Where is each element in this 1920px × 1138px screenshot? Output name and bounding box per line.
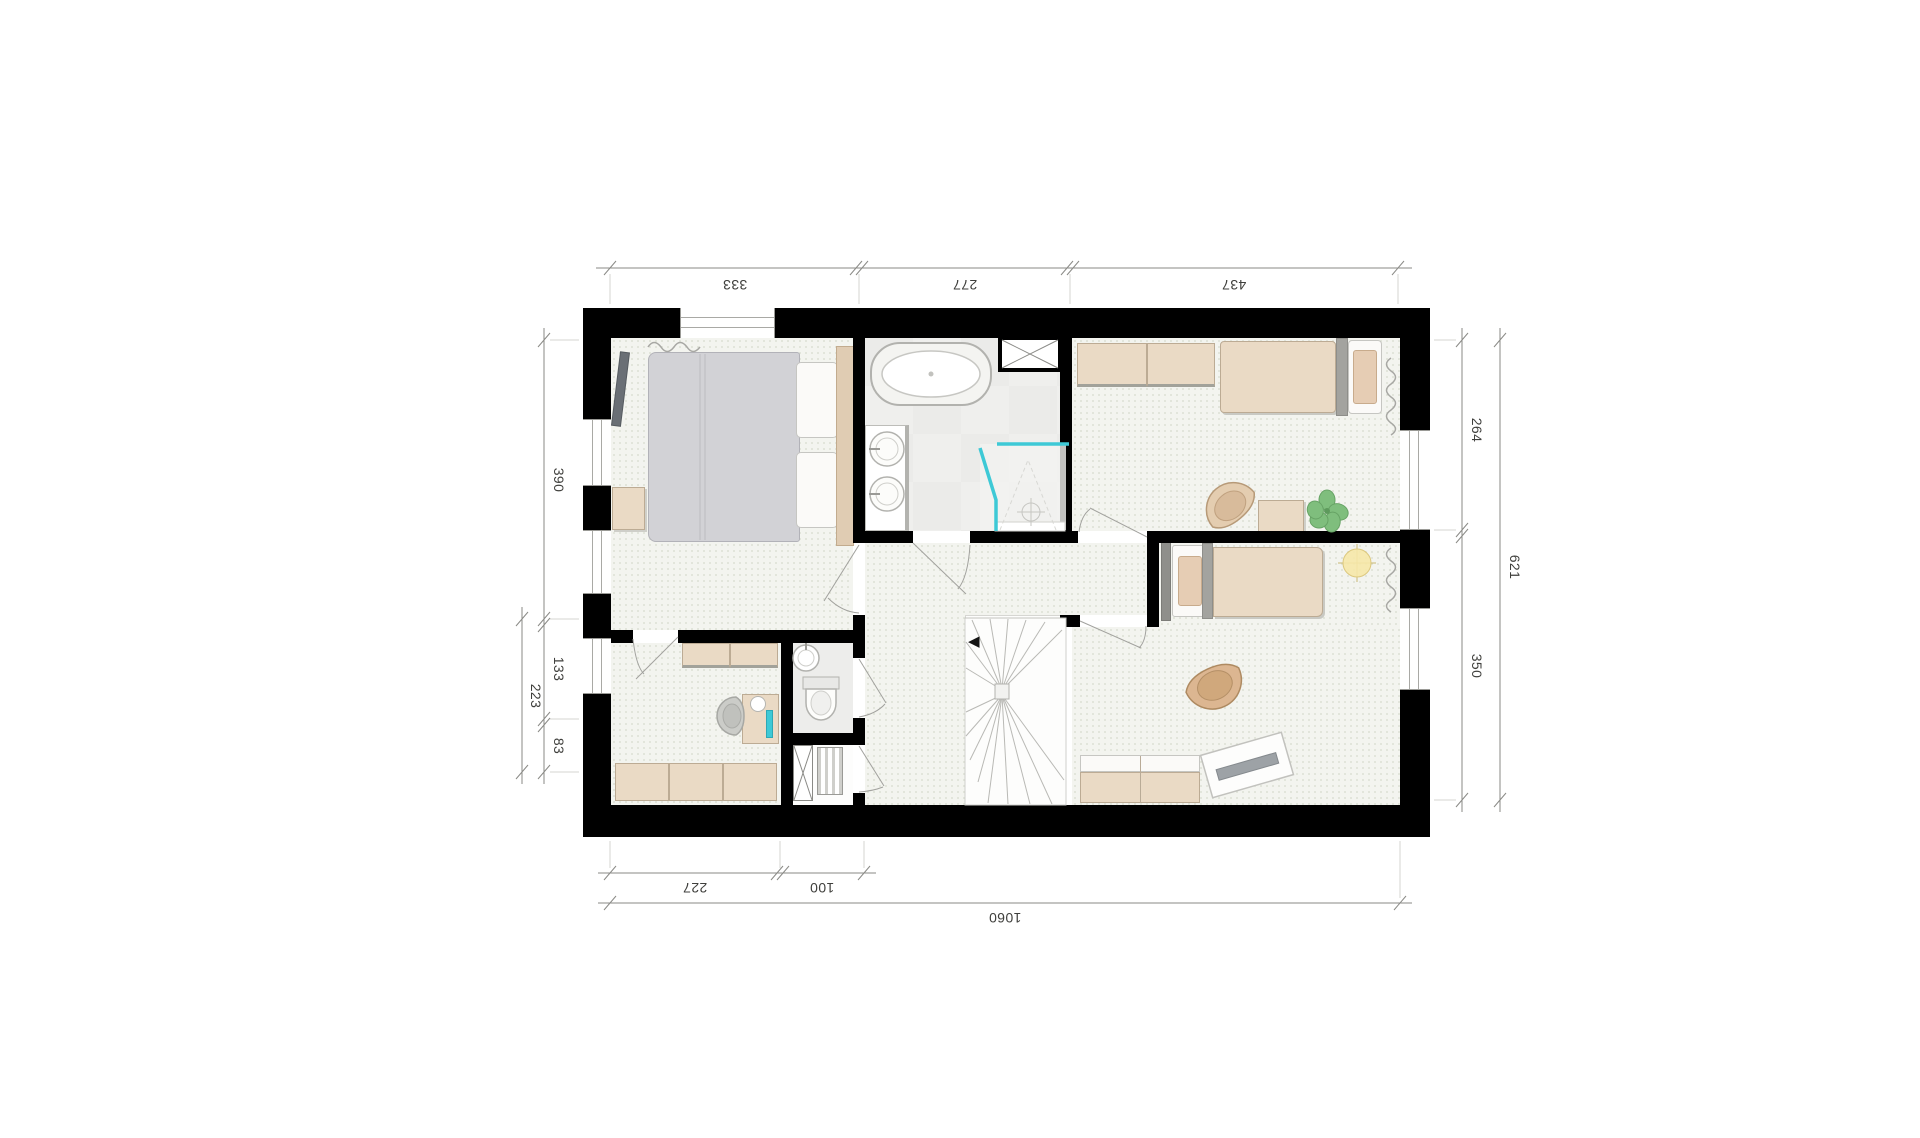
wall-left-pier-1 [583,486,611,530]
window-left-3 [583,638,611,694]
wall-right-1 [1400,308,1430,430]
dim-left-133: 133 [551,657,567,682]
study-desk-laptop [766,710,773,738]
closet-shaft-box [793,745,813,801]
master-bed-headboard [836,346,854,546]
wall-study-toilet-divider [781,630,793,805]
master-bed-pillow-top [796,362,838,438]
wall-bedroom-bathroom [853,338,865,543]
wall-topright-room-bottom [1147,531,1400,543]
dim-bottom-100: 100 [810,880,835,896]
topright-bed-board [1336,338,1348,416]
wall-top-right [775,308,1430,338]
topright-bed-pillow [1353,350,1377,404]
wall-bathroom-bottom-left [865,531,913,543]
floorplan-canvas: ◀ 333 277 437 390 133 83 223 264 350 621… [0,0,1920,1138]
wall-toilet-right-stub-2 [853,718,865,745]
bedroom-stool [612,487,645,530]
dim-top-333: 333 [723,277,748,293]
dim-right-350: 350 [1469,654,1485,679]
wall-bathroom-right [1060,338,1072,531]
wall-toilet-right-stub-3 [853,793,865,805]
wall-toilet-closet-divider [793,733,853,745]
floor-corridor [865,615,965,805]
wall-left-1 [583,308,611,419]
topright-wardrobe-panel-2 [1147,343,1215,387]
window-left-1 [583,419,611,486]
study-sofa-seat-2 [669,763,723,801]
dim-left-83: 83 [551,738,567,754]
dim-left-223: 223 [528,684,544,709]
topright-side-table [1258,500,1304,533]
dim-top-437: 437 [1222,277,1247,293]
window-top-master [680,308,775,338]
window-right-1 [1400,430,1430,530]
wall-study-toilet-top [678,630,865,643]
dim-bottom-227: 227 [683,880,708,896]
dim-right-621: 621 [1507,555,1523,580]
closet-ladder [817,747,843,795]
botright-sideboard-seam [1140,756,1141,802]
bathroom-sink-counter [865,425,909,531]
floor-hallway [865,543,1147,615]
stairs-direction-arrow-icon: ◀ [968,634,980,649]
master-bed-blanket [648,352,800,542]
topright-bed-blanket [1220,341,1336,413]
wall-stairs-botright [1060,615,1080,627]
dim-left-390: 390 [551,468,567,493]
floor-toilet-room [793,643,853,733]
floor-staircase [965,615,1066,805]
wall-bathroom-bottom-right [970,531,1072,543]
wall-left-pier-2 [583,594,611,638]
wall-hall-midright [1147,531,1159,627]
topright-wardrobe-panel-1 [1077,343,1147,387]
study-sofa-seat-3 [723,763,777,801]
midright-bed-blanket [1213,547,1323,617]
window-right-2 [1400,608,1430,690]
dim-top-277: 277 [953,277,978,293]
wall-topright-room-stub [1072,531,1078,543]
study-desk-lamp [750,696,766,712]
midright-bed-headboard [1161,541,1171,621]
dim-right-264: 264 [1469,418,1485,443]
study-closet-panel-2 [730,643,778,668]
window-left-2 [583,530,611,594]
master-bed-pillow-bottom [796,452,838,528]
wall-right-2 [1400,530,1430,608]
midright-bed-board [1202,543,1213,619]
study-sofa-seat-1 [615,763,669,801]
wall-bottom [583,805,1430,837]
study-closet-panel-1 [682,643,730,668]
dim-bottom-1060: 1060 [989,910,1022,926]
midright-bed-pillow [1178,556,1202,606]
wall-study-top-stub [611,630,633,643]
wall-toilet-right-stub-1 [853,650,865,658]
